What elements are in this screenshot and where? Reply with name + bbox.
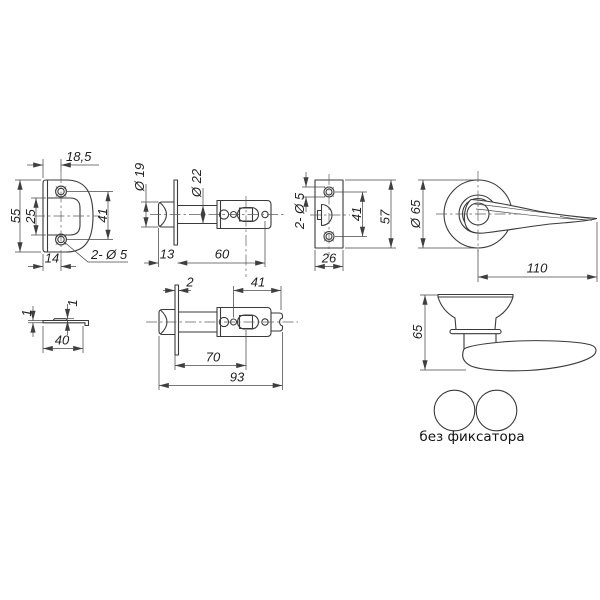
view-handle-side: 65 — [410, 295, 596, 371]
knob-circle-left — [434, 390, 475, 431]
dim-label: 110 — [527, 261, 548, 276]
view-variant: без фиксатора — [419, 390, 524, 445]
dim-label: 25 — [23, 209, 38, 225]
dim-label: 13 — [160, 247, 175, 262]
dim-label: 93 — [230, 370, 245, 385]
dim-label: 2- Ø 5 — [90, 247, 128, 262]
knob-circle-right — [476, 390, 517, 431]
dim-label: Ø 22 — [189, 168, 204, 198]
dim-label: 41 — [95, 208, 110, 222]
dim-label: 2 — [185, 275, 194, 290]
view-latch-top: 2 41 70 93 — [146, 275, 298, 391]
door-handle-drawing: 18,5 55 25 41 14 2- Ø 5 — [0, 0, 600, 600]
view-faceplate-profile: 1 1 40 — [19, 299, 89, 353]
view-latch-side: Ø 19 Ø 22 13 60 — [132, 163, 284, 277]
dim-label: 60 — [215, 247, 230, 262]
dim-label: 55 — [8, 208, 23, 223]
dim-label: 18,5 — [66, 149, 92, 164]
lever-side-outline — [463, 341, 596, 371]
technical-drawing-canvas: 18,5 55 25 41 14 2- Ø 5 — [0, 0, 600, 600]
dim-label: 70 — [206, 350, 221, 365]
dim-label: 57 — [378, 209, 393, 224]
dim-label: 1 — [19, 309, 34, 316]
dim-label: Ø 65 — [408, 199, 423, 229]
dim-label: 41 — [251, 275, 265, 290]
dim-label: 40 — [55, 333, 70, 348]
dim-label: 65 — [410, 324, 425, 339]
dim-label: 1 — [65, 299, 80, 306]
dim-label: Ø 19 — [132, 163, 147, 192]
dim-label: 2- Ø 5 — [292, 192, 307, 230]
view-faceplate-front: 18,5 55 25 41 14 2- Ø 5 — [8, 149, 128, 271]
dim-label: 41 — [349, 207, 364, 221]
dim-label: 26 — [321, 251, 337, 266]
view-handle-front: Ø 65 110 — [408, 171, 597, 282]
variant-caption: без фиксатора — [419, 429, 524, 445]
dim-label: 14 — [45, 251, 59, 266]
view-strike-plate: 2- Ø 5 41 57 26 — [292, 172, 396, 271]
